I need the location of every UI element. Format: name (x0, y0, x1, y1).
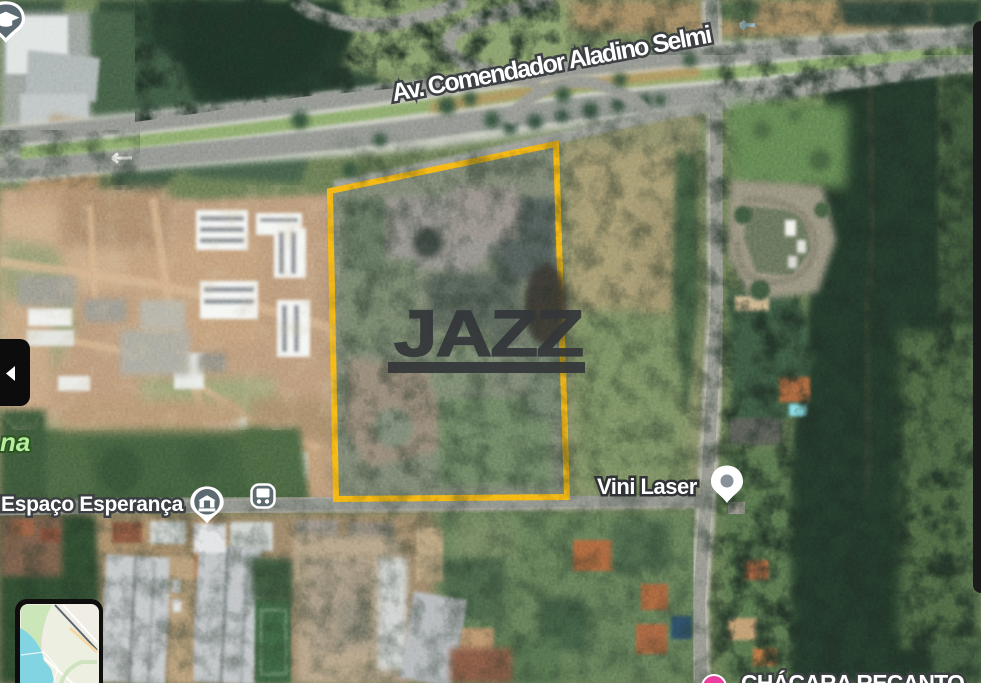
svg-text:na: na (0, 427, 30, 457)
svg-text:Vini Laser: Vini Laser (597, 474, 698, 499)
svg-text:JAZZ: JAZZ (394, 297, 583, 370)
svg-text:Av. Comendador Aladino Selmi: Av. Comendador Aladino Selmi (389, 21, 713, 108)
svg-text:CHÁCARA RECANTO: CHÁCARA RECANTO (741, 669, 964, 683)
svg-text:Espaço Esperança: Espaço Esperança (1, 493, 184, 516)
